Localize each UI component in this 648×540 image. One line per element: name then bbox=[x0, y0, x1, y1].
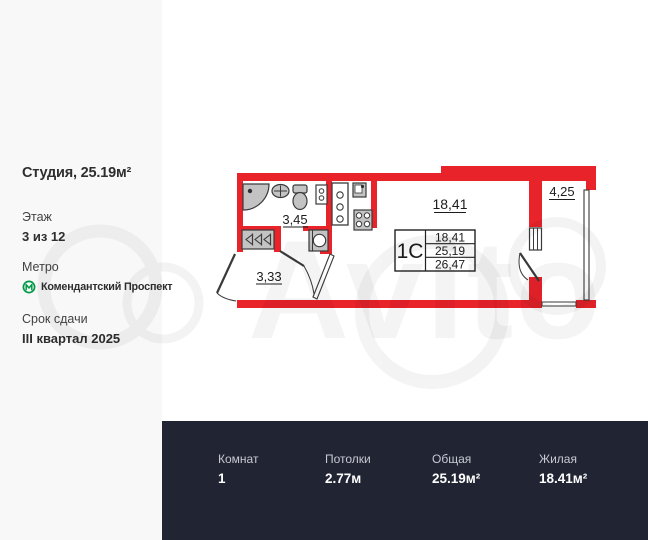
stat-total-area: Общая 25.19м² bbox=[432, 452, 539, 486]
stat-rooms-value: 1 bbox=[218, 471, 325, 486]
boiler-icon bbox=[316, 185, 327, 204]
shower-icon bbox=[243, 184, 269, 210]
washing-machine-icon bbox=[309, 230, 328, 251]
stat-ceilings-label: Потолки bbox=[325, 452, 432, 466]
bathroom-area-label: 3,45 bbox=[282, 212, 307, 227]
room-door-arc bbox=[280, 251, 314, 294]
stove-icon bbox=[354, 210, 372, 230]
hallway-angled-wall bbox=[313, 254, 334, 299]
balcony-partition-window bbox=[530, 228, 542, 250]
room-area-label: 18,41 bbox=[432, 196, 467, 212]
floor-plan: 3,45 3,33 18,41 4,25 1С 18,41 25,19 26,4… bbox=[0, 0, 648, 421]
spec-row-living: 18,41 bbox=[435, 231, 465, 245]
stat-ceilings-value: 2.77м bbox=[325, 471, 432, 486]
stat-living-area-value: 18.41м² bbox=[539, 471, 646, 486]
stats-footer: Комнат 1 Потолки 2.77м Общая 25.19м² Жил… bbox=[162, 421, 648, 540]
stat-living-area: Жилая 18.41м² bbox=[539, 452, 646, 486]
stat-total-area-value: 25.19м² bbox=[432, 471, 539, 486]
stat-rooms-label: Комнат bbox=[218, 452, 325, 466]
stat-ceilings: Потолки 2.77м bbox=[325, 452, 432, 486]
stat-living-area-label: Жилая bbox=[539, 452, 646, 466]
balcony-glazing-bottom bbox=[542, 302, 576, 306]
balcony-door-arc bbox=[519, 253, 539, 281]
spec-row-full: 26,47 bbox=[435, 257, 465, 271]
balcony-area-label: 4,25 bbox=[549, 184, 574, 199]
apartment-type-label: 1С bbox=[397, 240, 424, 263]
stat-rooms: Комнат 1 bbox=[218, 452, 325, 486]
spec-row-total: 25,19 bbox=[435, 244, 465, 258]
radiator-icon bbox=[242, 230, 274, 249]
hallway-area-label: 3,33 bbox=[256, 269, 281, 284]
spec-table: 1С 18,41 25,19 26,47 bbox=[395, 230, 475, 271]
kitchen-sink-icon bbox=[353, 183, 366, 197]
sink-icon bbox=[272, 185, 289, 198]
toilet-icon bbox=[293, 185, 307, 210]
entrance-door-arc bbox=[217, 254, 236, 301]
stat-total-area-label: Общая bbox=[432, 452, 539, 466]
balcony-glazing-right bbox=[584, 190, 589, 300]
